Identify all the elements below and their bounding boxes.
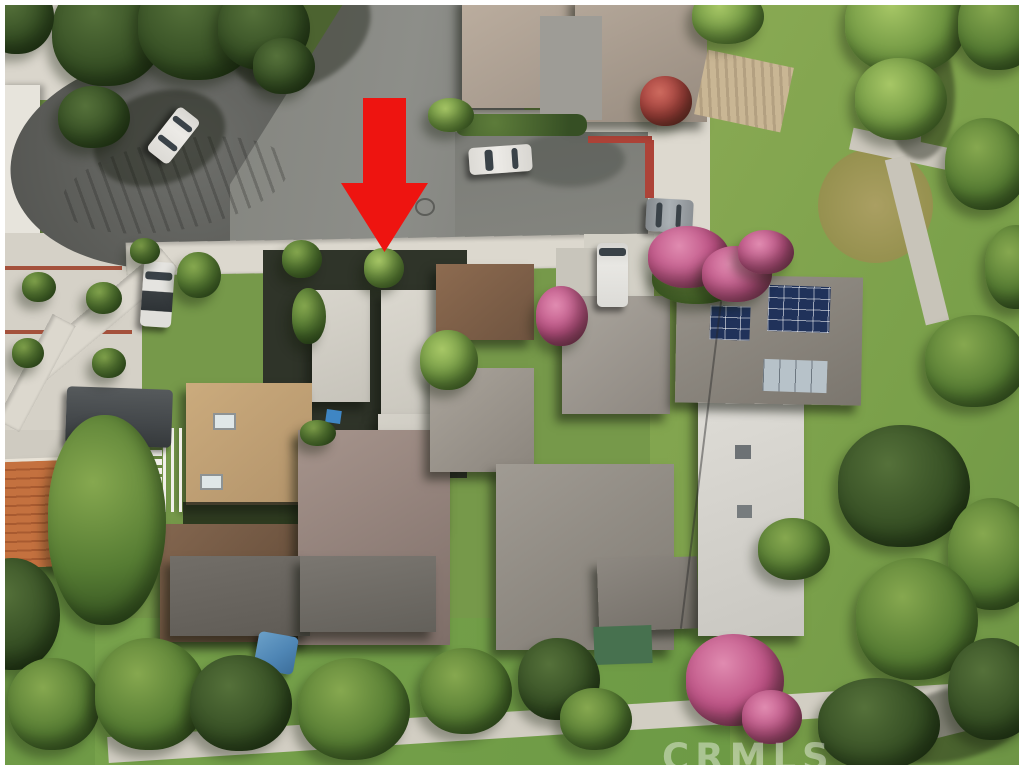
tree (282, 240, 322, 278)
tree (58, 86, 130, 148)
shrub (86, 282, 122, 314)
tree (948, 638, 1024, 740)
courtyard-plants (300, 420, 336, 446)
bougainvillea (536, 286, 588, 346)
tree (945, 118, 1024, 210)
solar-panel-array-large (767, 285, 831, 333)
van-white (597, 243, 628, 307)
solar-thermal-array (762, 359, 827, 393)
house-top-flat-section (540, 16, 602, 120)
tree (190, 655, 292, 751)
tree (428, 98, 474, 132)
tree-at-arrow-tip (364, 248, 404, 288)
large-tree-left (48, 415, 166, 625)
tree (818, 678, 940, 770)
skylight (200, 474, 223, 490)
white-flat-roof-building (698, 368, 804, 636)
hedge-row (455, 114, 587, 136)
tree (855, 58, 947, 140)
tree (177, 252, 221, 298)
bottom-roof-mid (300, 556, 436, 632)
tree (8, 658, 100, 750)
brown-shingle-roof-b (436, 264, 534, 340)
location-arrow-shape (341, 98, 428, 252)
brick-border-strip (0, 266, 122, 270)
green-shed (593, 625, 652, 665)
car-white-sedan (468, 144, 533, 175)
tree (420, 648, 512, 734)
rooftop-ac-unit (737, 505, 752, 518)
bougainvillea (738, 230, 794, 274)
tree (838, 425, 970, 547)
aerial-photo: CRMLS (0, 0, 1024, 770)
tree (758, 518, 830, 580)
tree (298, 658, 410, 760)
rooftop-ac-unit (735, 445, 751, 459)
shrub (22, 272, 56, 302)
shrub (130, 238, 160, 264)
tree (420, 330, 478, 390)
shrub (292, 288, 326, 344)
tree (925, 315, 1024, 407)
tree (560, 688, 632, 750)
car-white-left-street (140, 261, 175, 328)
red-curb (645, 140, 654, 198)
red-curb (588, 136, 652, 143)
tree (253, 38, 315, 94)
bottom-roof-left (170, 556, 310, 636)
listing-photo-card: CRMLS (0, 0, 1024, 770)
red-flowering-shrub (640, 76, 692, 126)
skylight (213, 413, 236, 430)
watermark: CRMLS (662, 736, 835, 770)
shrub (12, 338, 44, 368)
shrub (92, 348, 126, 378)
location-arrow (341, 98, 428, 252)
